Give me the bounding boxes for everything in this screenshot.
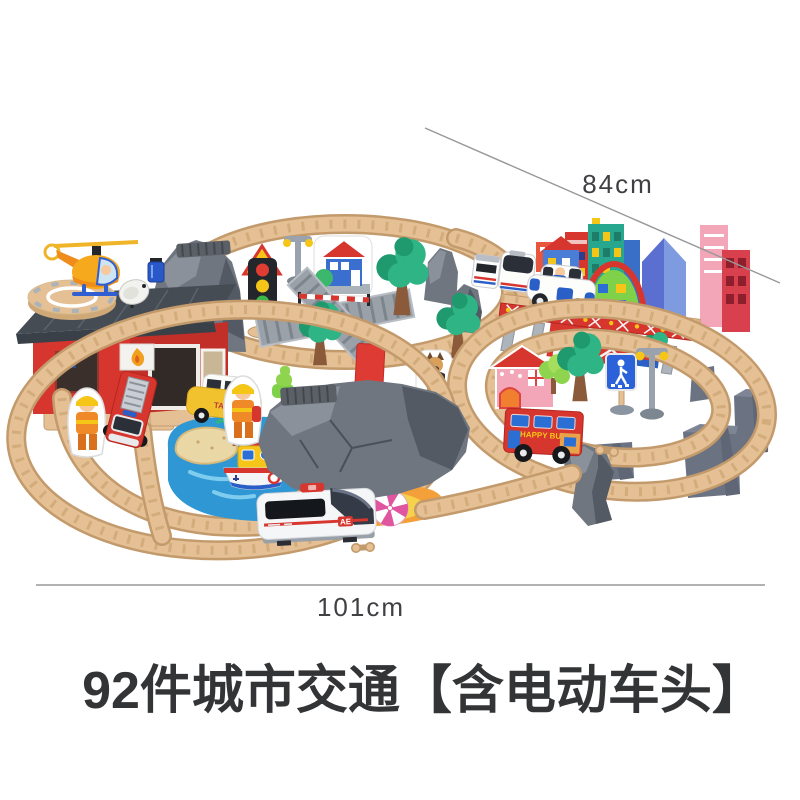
product-title: 92件城市交通【含电动车头】 bbox=[82, 662, 764, 720]
firefighter-figure bbox=[224, 376, 261, 445]
track-bone-piece bbox=[351, 542, 376, 554]
train-set-scene: HAPPY BUS bbox=[10, 218, 779, 561]
dimension-label-depth: 84cm bbox=[582, 169, 654, 199]
pilot-figure bbox=[101, 265, 111, 275]
wooden-track-connector bbox=[424, 474, 572, 510]
street-lamp-right bbox=[636, 348, 669, 420]
blue-beacon bbox=[148, 258, 164, 282]
train-badge: AE bbox=[340, 517, 352, 527]
firefighter-figure bbox=[68, 388, 105, 457]
pedestrian-sign bbox=[606, 354, 636, 415]
fire-extinguisher bbox=[252, 406, 261, 422]
product-page: HAPPY BUS bbox=[0, 0, 800, 800]
rock-mountain bbox=[258, 380, 470, 500]
flame-sign bbox=[120, 344, 154, 370]
dimension-label-width: 101cm bbox=[317, 592, 405, 622]
product-image: HAPPY BUS bbox=[0, 0, 800, 800]
